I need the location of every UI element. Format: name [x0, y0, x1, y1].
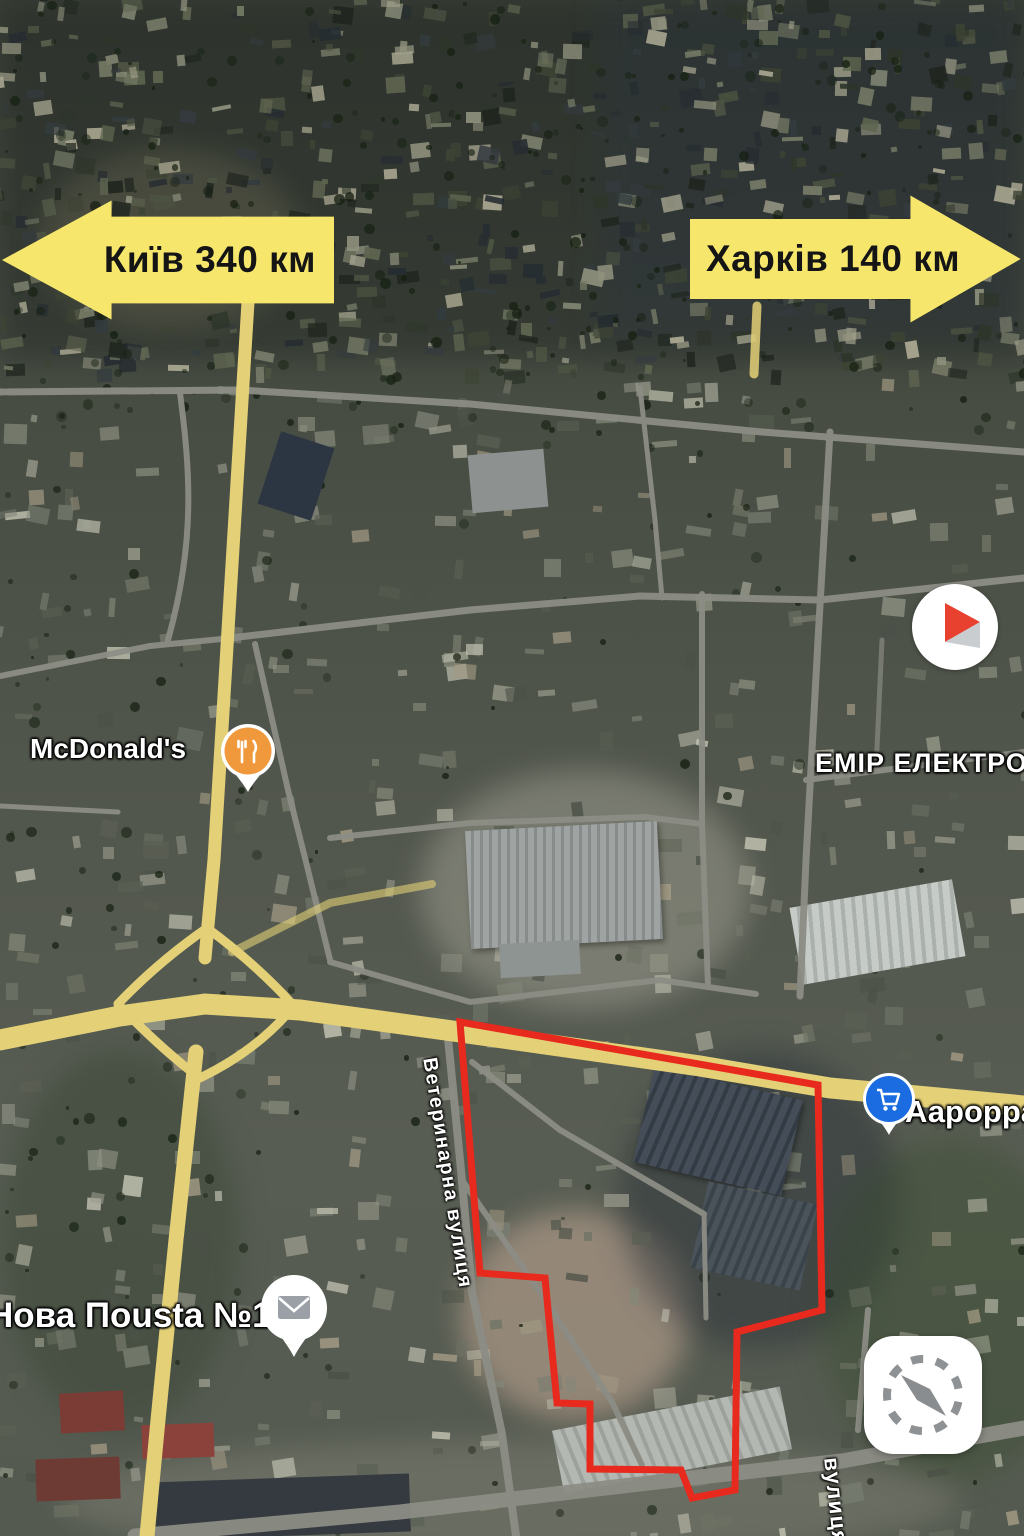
restaurant-pin-icon[interactable] [220, 722, 276, 801]
sign-kharkiv-label: Харків 140 км [706, 238, 960, 280]
poi-label-emir-elektro[interactable]: ЕМІР ЕЛЕКТРО [815, 748, 1024, 779]
play-button-marker[interactable] [912, 584, 998, 670]
poi-label-avrora[interactable]: Аарорра [905, 1094, 1024, 1130]
compass-icon[interactable] [864, 1336, 982, 1454]
cart-pin-icon[interactable] [862, 1072, 916, 1145]
poi-label-mcdonalds[interactable]: McDonald's [30, 733, 186, 765]
sign-kyiv-label: Київ 340 км [104, 239, 316, 281]
mail-pin-icon[interactable] [260, 1274, 328, 1365]
poi-label-nova-poshta[interactable]: Нова Поusta №1 [0, 1296, 272, 1336]
satellite-map: Ветеринарна вулиця вулиця McDonald's ЕМІ… [0, 0, 1024, 1536]
